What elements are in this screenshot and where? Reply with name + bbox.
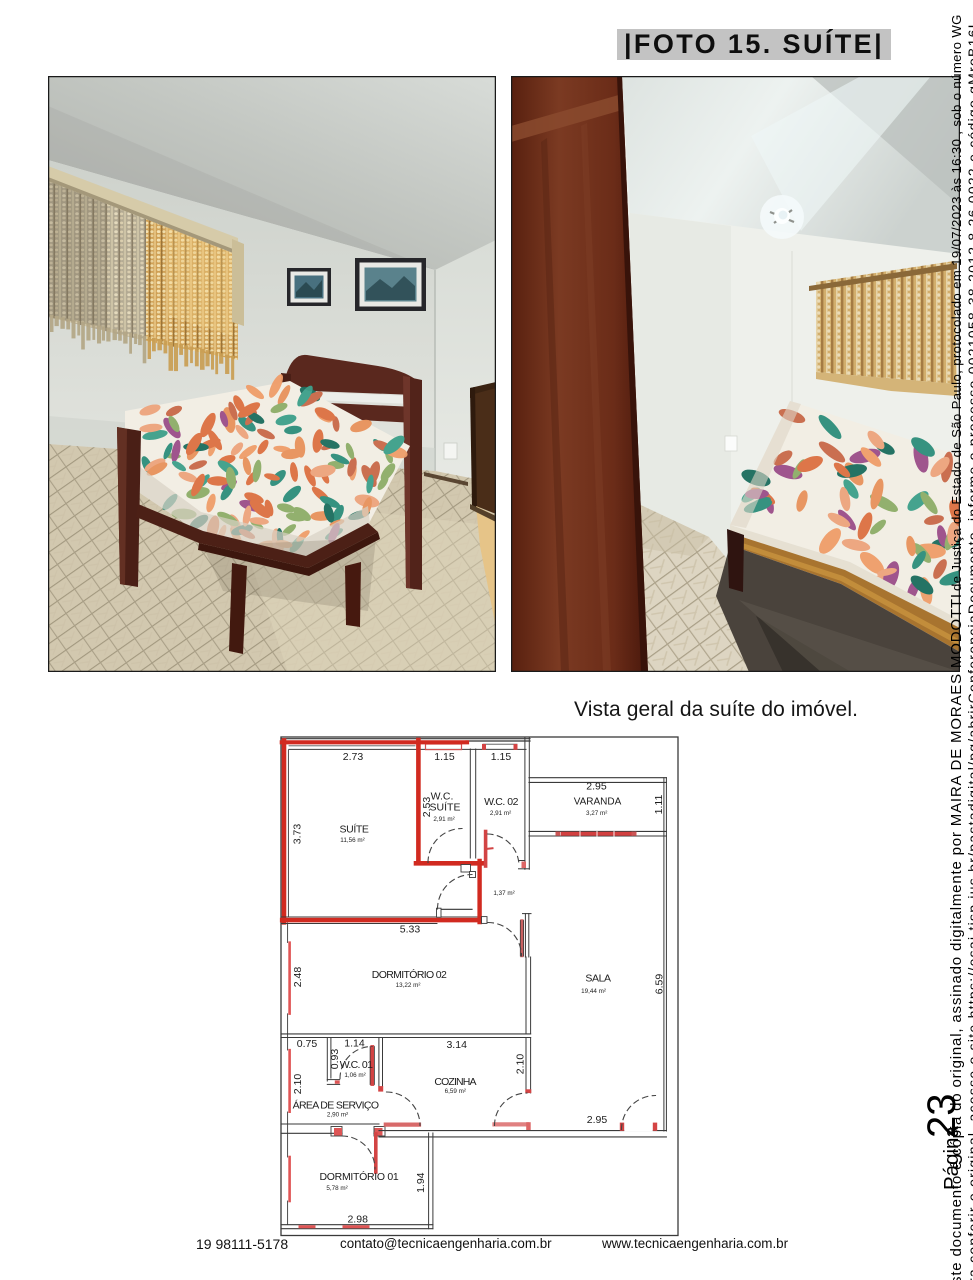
svg-text:ra conferir o original, acesse: ra conferir o original, acesse o site ht… [965,14,973,1280]
svg-text:23: 23 [920,1094,964,1139]
svg-text:de Justiça do Estado de São Pa: de Justiça do Estado de São Paulo, proto… [949,14,964,591]
